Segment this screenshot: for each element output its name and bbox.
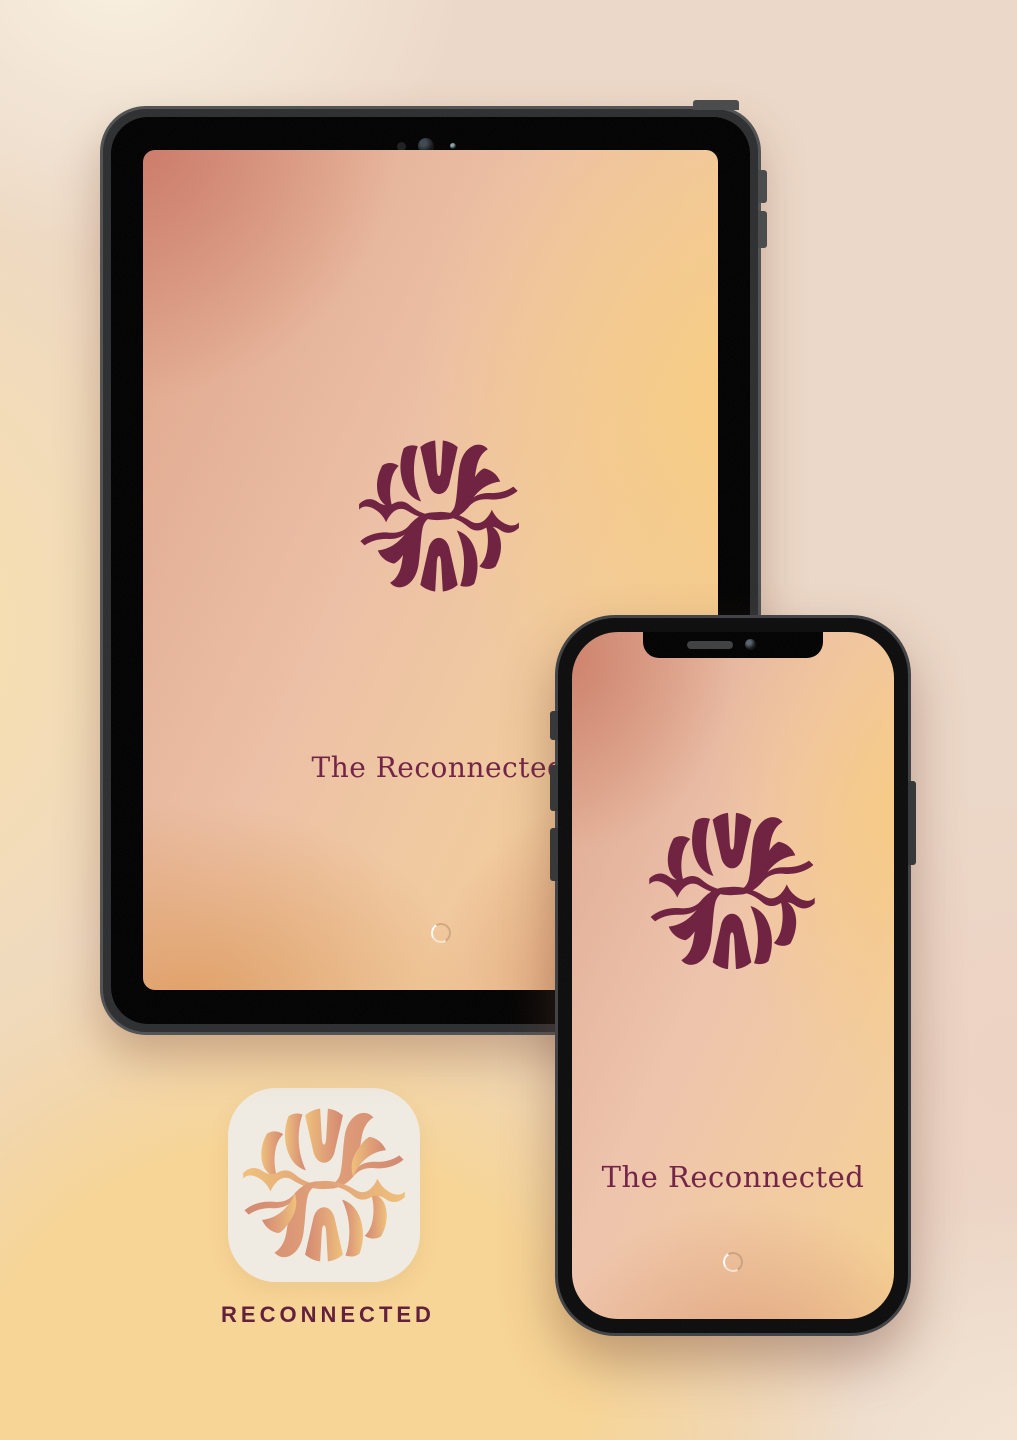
loading-spinner-icon	[721, 1250, 745, 1274]
app-title: The Reconnected	[572, 1160, 894, 1194]
sunburst-logo-icon	[354, 431, 524, 601]
phone-power-button	[908, 781, 916, 865]
phone-screen: The Reconnected	[572, 632, 894, 1319]
tablet-power-button	[693, 100, 739, 110]
phone-speaker-icon	[687, 641, 733, 649]
tablet-volume-up-button	[758, 170, 767, 203]
sunburst-logo-icon	[644, 803, 820, 979]
phone-volume-down-button	[550, 828, 558, 881]
app-icon	[228, 1088, 420, 1282]
phone-notch	[643, 632, 823, 658]
loading-spinner-icon	[428, 921, 452, 945]
phone-mute-switch	[550, 711, 558, 740]
tablet-mic-icon	[450, 143, 456, 149]
app-icon-label: RECONNECTED	[128, 1302, 528, 1328]
phone-device: The Reconnected	[555, 615, 911, 1336]
tablet-volume-down-button	[758, 211, 767, 248]
phone-volume-up-button	[550, 765, 558, 811]
poster-background: The Reconnected The Reconnected RECONNEC…	[0, 0, 1017, 1440]
sunburst-logo-gradient-icon	[238, 1099, 410, 1271]
phone-front-camera-icon	[745, 639, 756, 650]
